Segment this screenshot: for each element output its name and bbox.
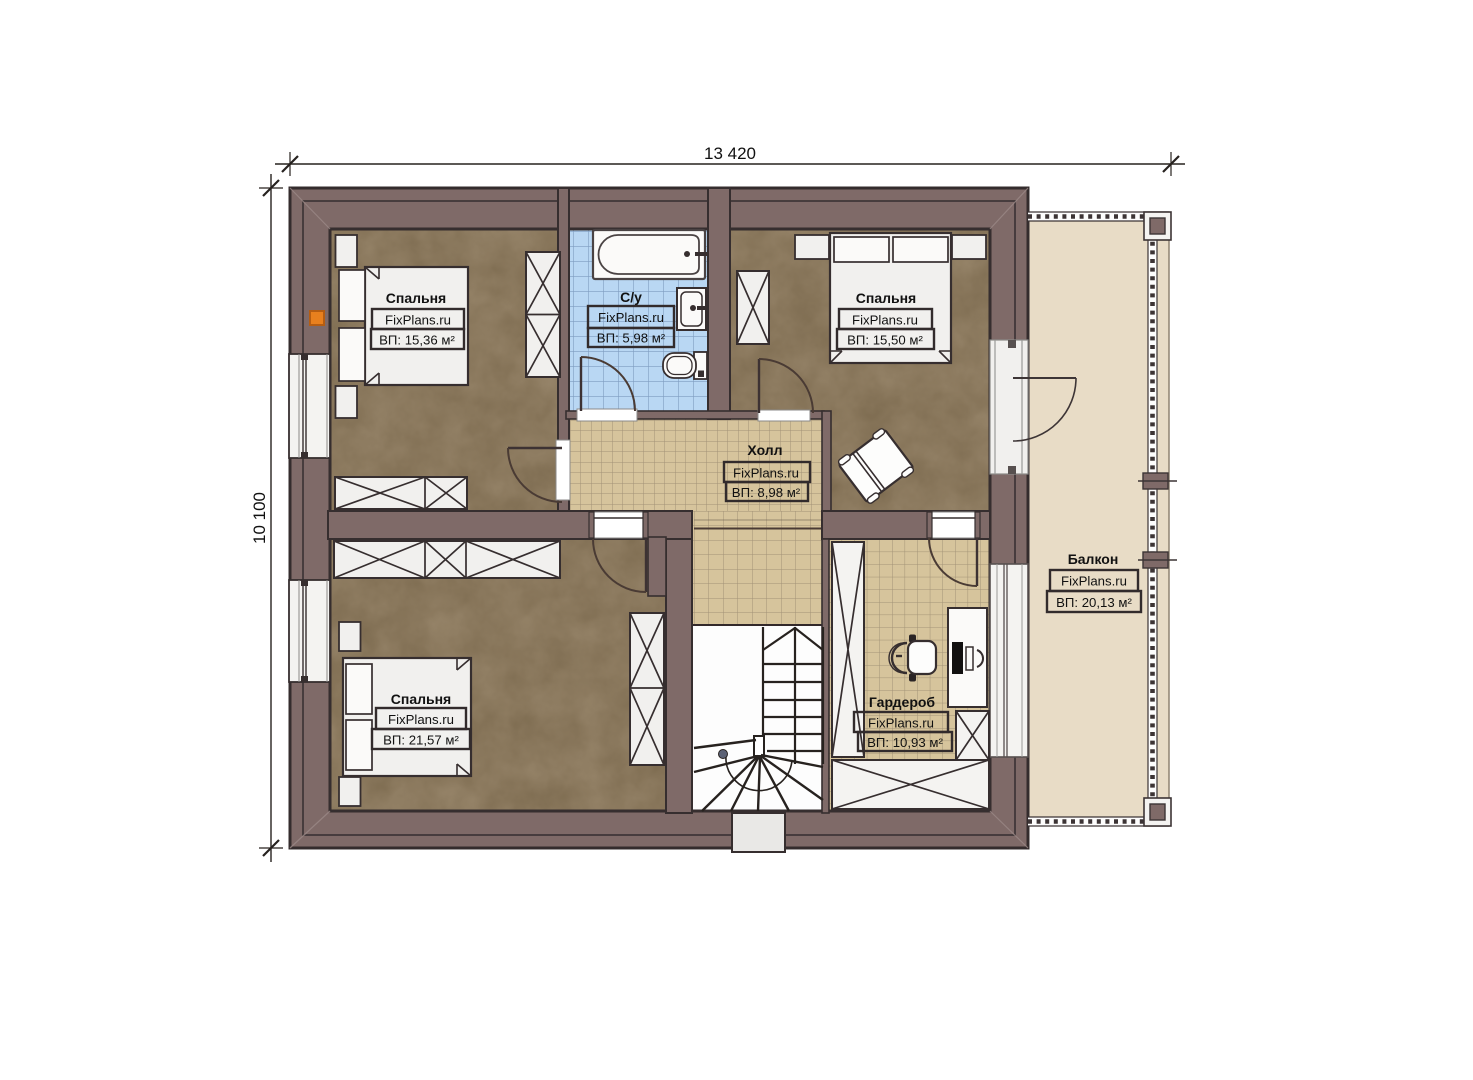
svg-text:ВП: 15,50 м²: ВП: 15,50 м² bbox=[847, 333, 923, 348]
svg-text:ВП: 21,57 м²: ВП: 21,57 м² bbox=[383, 733, 459, 748]
svg-text:ВП: 10,93 м²: ВП: 10,93 м² bbox=[867, 735, 943, 750]
svg-text:10 100: 10 100 bbox=[250, 492, 269, 544]
svg-text:FixPlans.ru: FixPlans.ru bbox=[1061, 574, 1127, 589]
svg-text:FixPlans.ru: FixPlans.ru bbox=[852, 313, 918, 328]
svg-text:FixPlans.ru: FixPlans.ru bbox=[385, 313, 451, 328]
svg-text:ВП: 15,36 м²: ВП: 15,36 м² bbox=[379, 333, 455, 348]
svg-text:FixPlans.ru: FixPlans.ru bbox=[868, 716, 934, 731]
svg-text:Гардероб: Гардероб bbox=[869, 694, 936, 710]
svg-text:ВП: 8,98 м²: ВП: 8,98 м² bbox=[732, 485, 801, 500]
svg-text:ВП: 5,98 м²: ВП: 5,98 м² bbox=[597, 331, 666, 346]
svg-text:Спальня: Спальня bbox=[856, 290, 916, 306]
svg-text:Холл: Холл bbox=[747, 442, 782, 458]
svg-text:Спальня: Спальня bbox=[391, 691, 451, 707]
svg-text:Балкон: Балкон bbox=[1068, 551, 1119, 567]
svg-text:Спальня: Спальня bbox=[386, 290, 446, 306]
svg-text:13 420: 13 420 bbox=[704, 144, 756, 163]
svg-text:С/у: С/у bbox=[620, 289, 642, 305]
svg-text:ВП: 20,13 м²: ВП: 20,13 м² bbox=[1056, 595, 1132, 610]
svg-text:FixPlans.ru: FixPlans.ru bbox=[733, 466, 799, 481]
svg-text:FixPlans.ru: FixPlans.ru bbox=[598, 310, 664, 325]
svg-text:FixPlans.ru: FixPlans.ru bbox=[388, 712, 454, 727]
